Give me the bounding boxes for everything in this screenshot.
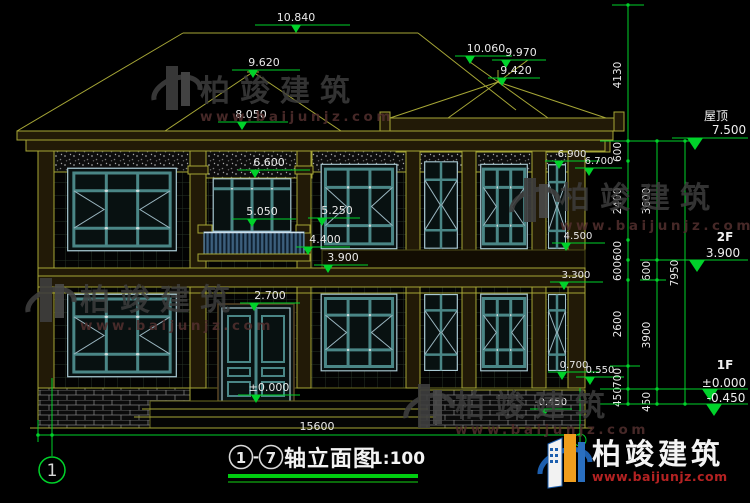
- dim-c-7950: 7950: [669, 260, 681, 287]
- window-2f-tower: [425, 162, 458, 248]
- level-2f: 2F 3.900: [677, 230, 748, 272]
- window-1f-right: [481, 294, 528, 371]
- brand-logo: 柏竣建筑 www.baijunjz.com: [540, 434, 728, 488]
- watermark-logo-icon: [154, 66, 200, 110]
- dim-a-2600: 2600: [612, 311, 624, 338]
- cad-elevation-canvas: 10.840 9.620 8.050 10.060 9.970 9.420 6.…: [0, 0, 750, 503]
- window-2f-left: [68, 168, 177, 250]
- mark-c2: 4.400: [309, 233, 341, 246]
- mark-c3: 3.900: [327, 251, 359, 264]
- watermark-url: www.baijunjz.com: [560, 218, 750, 234]
- level-zero-value: ±0.000: [702, 376, 746, 390]
- title-axis-end: 7: [266, 449, 276, 467]
- title-underline: [228, 474, 418, 478]
- title-text: 轴立面图: [284, 446, 376, 472]
- brand-logo-url: www.baijunjz.com: [592, 469, 728, 484]
- tower-canopy-upper: [382, 118, 622, 131]
- watermark-brand: 柏竣建筑: [560, 181, 720, 216]
- level-1f-label: 1F: [717, 358, 734, 372]
- dim-a-600b: 600: [612, 241, 624, 261]
- window-2f-right: [481, 164, 528, 248]
- title-axis-start: 1: [236, 449, 246, 467]
- mark-door-zero: ±0.000: [249, 381, 290, 394]
- mark-r4: 3.300: [562, 270, 591, 281]
- balcony-railing: [204, 232, 304, 254]
- dim-b-600: 600: [641, 261, 653, 281]
- mark-r2: 6.700: [585, 156, 614, 167]
- mark-r5: 0.700: [560, 360, 589, 371]
- title-scale: 1:100: [371, 449, 425, 469]
- watermark-brand: 柏竣建筑: [200, 74, 360, 109]
- title-underline-shadow: [228, 481, 418, 483]
- watermark-url: www.baijunjz.com: [455, 422, 649, 438]
- brand-logo-icon: [540, 434, 590, 488]
- window-1f-mid: [321, 294, 397, 371]
- dim-a-700: 700: [612, 368, 624, 388]
- level-1f: 1F ±0.000 -0.450: [690, 358, 748, 416]
- mark-door: 2.700: [254, 289, 286, 302]
- watermark-1: 柏竣建筑 www.baijunjz.com: [154, 66, 394, 125]
- dim-total-width-text: 15600: [300, 420, 335, 433]
- elevation-drawing: 10.840 9.620 8.050 10.060 9.970 9.420 6.…: [0, 0, 750, 503]
- dim-b-450: 450: [641, 392, 653, 412]
- mark-peak-left: 9.620: [248, 56, 280, 69]
- balcony-slab: [198, 254, 310, 261]
- drawing-title: 1 - 7 轴立面图 1:100: [228, 446, 425, 484]
- level-2f-value: 3.900: [706, 246, 740, 260]
- watermark-brand: 柏竣建筑: [80, 283, 240, 318]
- mark-frieze: 6.600: [253, 156, 285, 169]
- level-below-value: -0.450: [707, 391, 746, 405]
- mark-r1: 6.900: [558, 149, 587, 160]
- mark-balcony: 5.050: [246, 205, 278, 218]
- dim-a-600a: 600: [612, 142, 624, 162]
- axis-bubble-1-text: 1: [47, 461, 58, 481]
- window-1f-tower: [425, 295, 458, 371]
- mark-tower-apex: 9.420: [500, 64, 532, 77]
- eave-fascia: [17, 131, 613, 151]
- mark-tower-fin2: 9.970: [505, 46, 537, 59]
- title-separator: -: [253, 448, 259, 466]
- mark-tower-fin1: 10.060: [467, 42, 506, 55]
- level-roof-value: 7.500: [712, 123, 746, 137]
- mark-ridge: 10.840: [277, 11, 316, 24]
- watermark-brand: 柏竣建筑: [455, 389, 615, 424]
- mark-c1: 5.250: [321, 204, 353, 217]
- entry-steps: [134, 401, 436, 428]
- mark-r6: 0.550: [586, 365, 615, 376]
- dim-b-3900: 3900: [641, 322, 653, 349]
- level-roof: 屋顶 7.500: [672, 109, 748, 150]
- brand-logo-text: 柏竣建筑: [592, 437, 724, 471]
- watermark-url: www.baijunjz.com: [200, 109, 394, 125]
- dim-a-4130: 4130: [612, 62, 624, 89]
- dim-a-600c: 600: [612, 261, 624, 281]
- level-roof-label: 屋顶: [704, 109, 728, 123]
- dim-column-C: 7950: [669, 139, 687, 405]
- watermark-url: www.baijunjz.com: [80, 318, 274, 334]
